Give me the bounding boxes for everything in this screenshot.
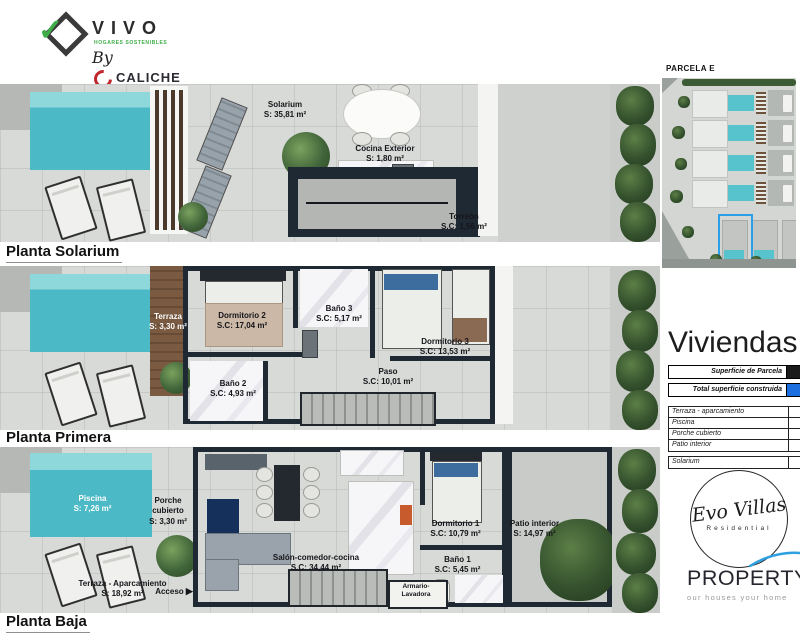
tree-icon bbox=[618, 449, 656, 491]
room-label-piscina: Piscina S: 7,26 m² bbox=[45, 494, 140, 515]
table-value-cell bbox=[788, 457, 800, 468]
plan-title-baja: Planta Baja bbox=[6, 613, 90, 633]
tree-strip bbox=[610, 266, 660, 430]
plan-title-primera: Planta Primera bbox=[6, 429, 114, 449]
torreon-roof-line bbox=[306, 202, 448, 204]
evo-villas-sub: Residential bbox=[691, 525, 787, 532]
table-value-cell bbox=[788, 440, 800, 451]
tree-icon bbox=[682, 226, 694, 238]
plant bbox=[178, 202, 208, 232]
parcela-label: PARCELA E bbox=[666, 64, 715, 73]
plan-title-solarium: Planta Solarium bbox=[6, 243, 122, 263]
vivo-caliche-logo: ✓ VIVO HOGARES SOSTENIBLES By CALICHE CO… bbox=[36, 8, 206, 90]
dining-chair bbox=[303, 503, 320, 518]
wall bbox=[188, 352, 308, 357]
unit-pergola bbox=[756, 122, 766, 144]
floor-plan-solarium: Solarium S: 35,81 m² Cocina Exterior S: … bbox=[0, 84, 660, 242]
room-label-cocina-exterior: Cocina Exterior S: 1,80 m² bbox=[335, 144, 435, 165]
floor-plan-primera: Terraza S: 3,30 m² Dormitorio 2 S.C: 17,… bbox=[0, 266, 660, 430]
room-label-armario: Armario-Lavadora bbox=[390, 583, 442, 600]
wall bbox=[293, 266, 298, 328]
room-label-acceso: Acceso ▶ bbox=[138, 586, 210, 598]
room-label-dormitorio2: Dormitorio 2 S.C: 17,04 m² bbox=[192, 311, 292, 332]
area-table: Superficie de Parcela Total superficie c… bbox=[668, 365, 800, 469]
tree-icon bbox=[622, 489, 658, 533]
room-label-porche: Porche cubierto S: 3,30 m² bbox=[140, 496, 196, 527]
sun-lounger bbox=[44, 175, 97, 240]
table-value-cell bbox=[786, 366, 800, 378]
tree-icon bbox=[616, 350, 654, 392]
vivo-wordmark: VIVO bbox=[92, 18, 163, 39]
table-label: Total superficie construida bbox=[669, 384, 786, 396]
unit-pool bbox=[728, 185, 754, 201]
unit-pool bbox=[728, 155, 754, 171]
tree-icon bbox=[622, 390, 658, 430]
vivo-tagline: HOGARES SOSTENIBLES bbox=[94, 40, 167, 46]
pool bbox=[30, 274, 150, 352]
sink bbox=[302, 330, 318, 358]
property-logo: PROPERTY&CO our houses your home bbox=[687, 566, 800, 602]
solarium-row: Solarium bbox=[668, 456, 800, 469]
room-label-torreon: Torreón S.C: 1,56 m² bbox=[418, 212, 510, 233]
dining-chair bbox=[256, 485, 273, 500]
bed-headboard bbox=[200, 270, 286, 281]
evo-villas-wordmark: Evo Villas bbox=[690, 493, 788, 527]
unit-pergola bbox=[756, 92, 766, 114]
page-title: Viviendas 5-6-7 bbox=[668, 326, 800, 360]
unit-roof bbox=[692, 180, 728, 208]
dining-chair bbox=[256, 503, 273, 518]
bed bbox=[205, 281, 283, 305]
dining-table bbox=[274, 465, 300, 521]
tree-icon bbox=[620, 202, 656, 242]
property-tagline: our houses your home bbox=[687, 593, 800, 602]
wall-gap bbox=[495, 266, 513, 424]
brochure-page: ✓ VIVO HOGARES SOSTENIBLES By CALICHE CO… bbox=[0, 0, 800, 640]
tree-icon bbox=[618, 270, 656, 312]
sun-lounger bbox=[96, 364, 146, 428]
tree-icon bbox=[616, 533, 656, 575]
bed-pillow bbox=[384, 274, 438, 290]
room-label-dormitorio3: Dormitorio 3 S.C: 13,53 m² bbox=[395, 337, 495, 358]
floor-plan-baja: Piscina S: 7,26 m² Porche cubierto S: 3,… bbox=[0, 447, 660, 613]
bed-headboard bbox=[430, 452, 482, 461]
tree-icon bbox=[622, 310, 658, 352]
unit-roof bbox=[692, 90, 728, 118]
property-wordmark: PROPERTY&CO bbox=[687, 566, 800, 591]
unit-roof bbox=[692, 150, 728, 178]
table-row-parcela: Superficie de Parcela bbox=[668, 365, 800, 379]
wall bbox=[420, 545, 502, 550]
stairs bbox=[300, 392, 436, 426]
property-swoosh-icon bbox=[748, 548, 800, 568]
room-label-patio: Patio interior S: 14,97 m² bbox=[487, 519, 582, 540]
table-value-cell bbox=[788, 418, 800, 428]
unit-pergola bbox=[756, 182, 766, 204]
table-value-cell bbox=[788, 407, 800, 417]
tree-icon bbox=[675, 158, 687, 170]
car bbox=[782, 154, 793, 173]
unit-pergola bbox=[756, 152, 766, 174]
table-label: Superficie de Parcela bbox=[669, 366, 786, 378]
tree-icon bbox=[615, 164, 653, 204]
sun-lounger bbox=[96, 178, 146, 242]
table-value-cell bbox=[788, 429, 800, 439]
tree-icon bbox=[616, 86, 654, 126]
road bbox=[662, 259, 796, 268]
caliche-wordmark: CALICHE bbox=[116, 70, 181, 85]
table-row: Solarium bbox=[669, 457, 800, 468]
unit-pool bbox=[728, 125, 754, 141]
room-label-paso: Paso S.C: 10,01 m² bbox=[340, 367, 436, 388]
tree-icon bbox=[620, 124, 656, 166]
room-label-bano2: Baño 2 S.C: 4,93 m² bbox=[185, 379, 281, 400]
table-row: Porche cubierto bbox=[669, 429, 800, 440]
room-label-solarium: Solarium S: 35,81 m² bbox=[235, 100, 335, 121]
bed-pillow bbox=[434, 463, 478, 477]
unit-pool bbox=[728, 95, 754, 111]
tree-icon bbox=[678, 96, 690, 108]
table-row-construida: Total superficie construida bbox=[668, 383, 800, 397]
acceso-arrow-icon: ▶ bbox=[186, 586, 193, 596]
wall bbox=[420, 447, 425, 505]
site-plan bbox=[662, 78, 796, 268]
plant bbox=[156, 535, 198, 577]
table-row: Patio interior bbox=[669, 440, 800, 451]
stairs bbox=[288, 569, 388, 607]
room-label-bano3: Baño 3 S.C: 5,17 m² bbox=[300, 304, 378, 325]
car bbox=[782, 94, 793, 113]
dining-table bbox=[343, 89, 421, 139]
dining-chair bbox=[256, 467, 273, 482]
car bbox=[782, 124, 793, 143]
room-label-bano1: Baño 1 S.C: 5,45 m² bbox=[410, 555, 505, 576]
kitchen-counter bbox=[340, 450, 404, 476]
tree-icon bbox=[622, 573, 658, 613]
rug bbox=[207, 499, 239, 533]
pool bbox=[30, 92, 150, 170]
area-breakdown-table: Terraza - aparcamiento Piscina Porche cu… bbox=[668, 406, 800, 452]
side-terrace bbox=[498, 84, 610, 242]
table-value-cell bbox=[786, 384, 800, 396]
unit-roof bbox=[692, 120, 728, 148]
vivo-by-label: By bbox=[92, 48, 113, 67]
car bbox=[782, 184, 793, 203]
site-plan-hedge bbox=[682, 79, 796, 86]
sun-lounger bbox=[44, 361, 97, 426]
table-row: Terraza - aparcamiento bbox=[669, 407, 800, 418]
dining-chair bbox=[303, 467, 320, 482]
tree-icon bbox=[670, 190, 683, 203]
vivo-check-icon: ✓ bbox=[38, 16, 63, 46]
table-row: Piscina bbox=[669, 418, 800, 429]
room-label-salon: Salón-comedor-cocina S.C: 34,44 m² bbox=[260, 553, 372, 574]
bathroom-floor bbox=[455, 575, 503, 603]
tree-strip bbox=[612, 447, 660, 613]
dining-chair bbox=[303, 485, 320, 500]
tree-strip bbox=[610, 84, 660, 242]
tv-cabinet bbox=[205, 454, 267, 470]
tree-icon bbox=[672, 126, 685, 139]
